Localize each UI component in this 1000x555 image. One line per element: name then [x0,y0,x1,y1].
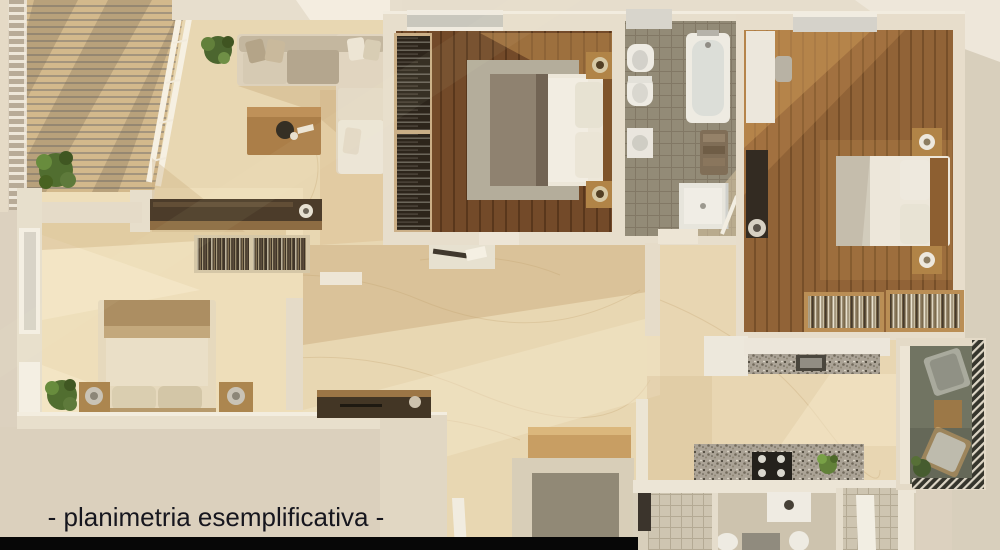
svg-text:- planimetria esemplificativa: - planimetria esemplificativa - [48,502,385,532]
